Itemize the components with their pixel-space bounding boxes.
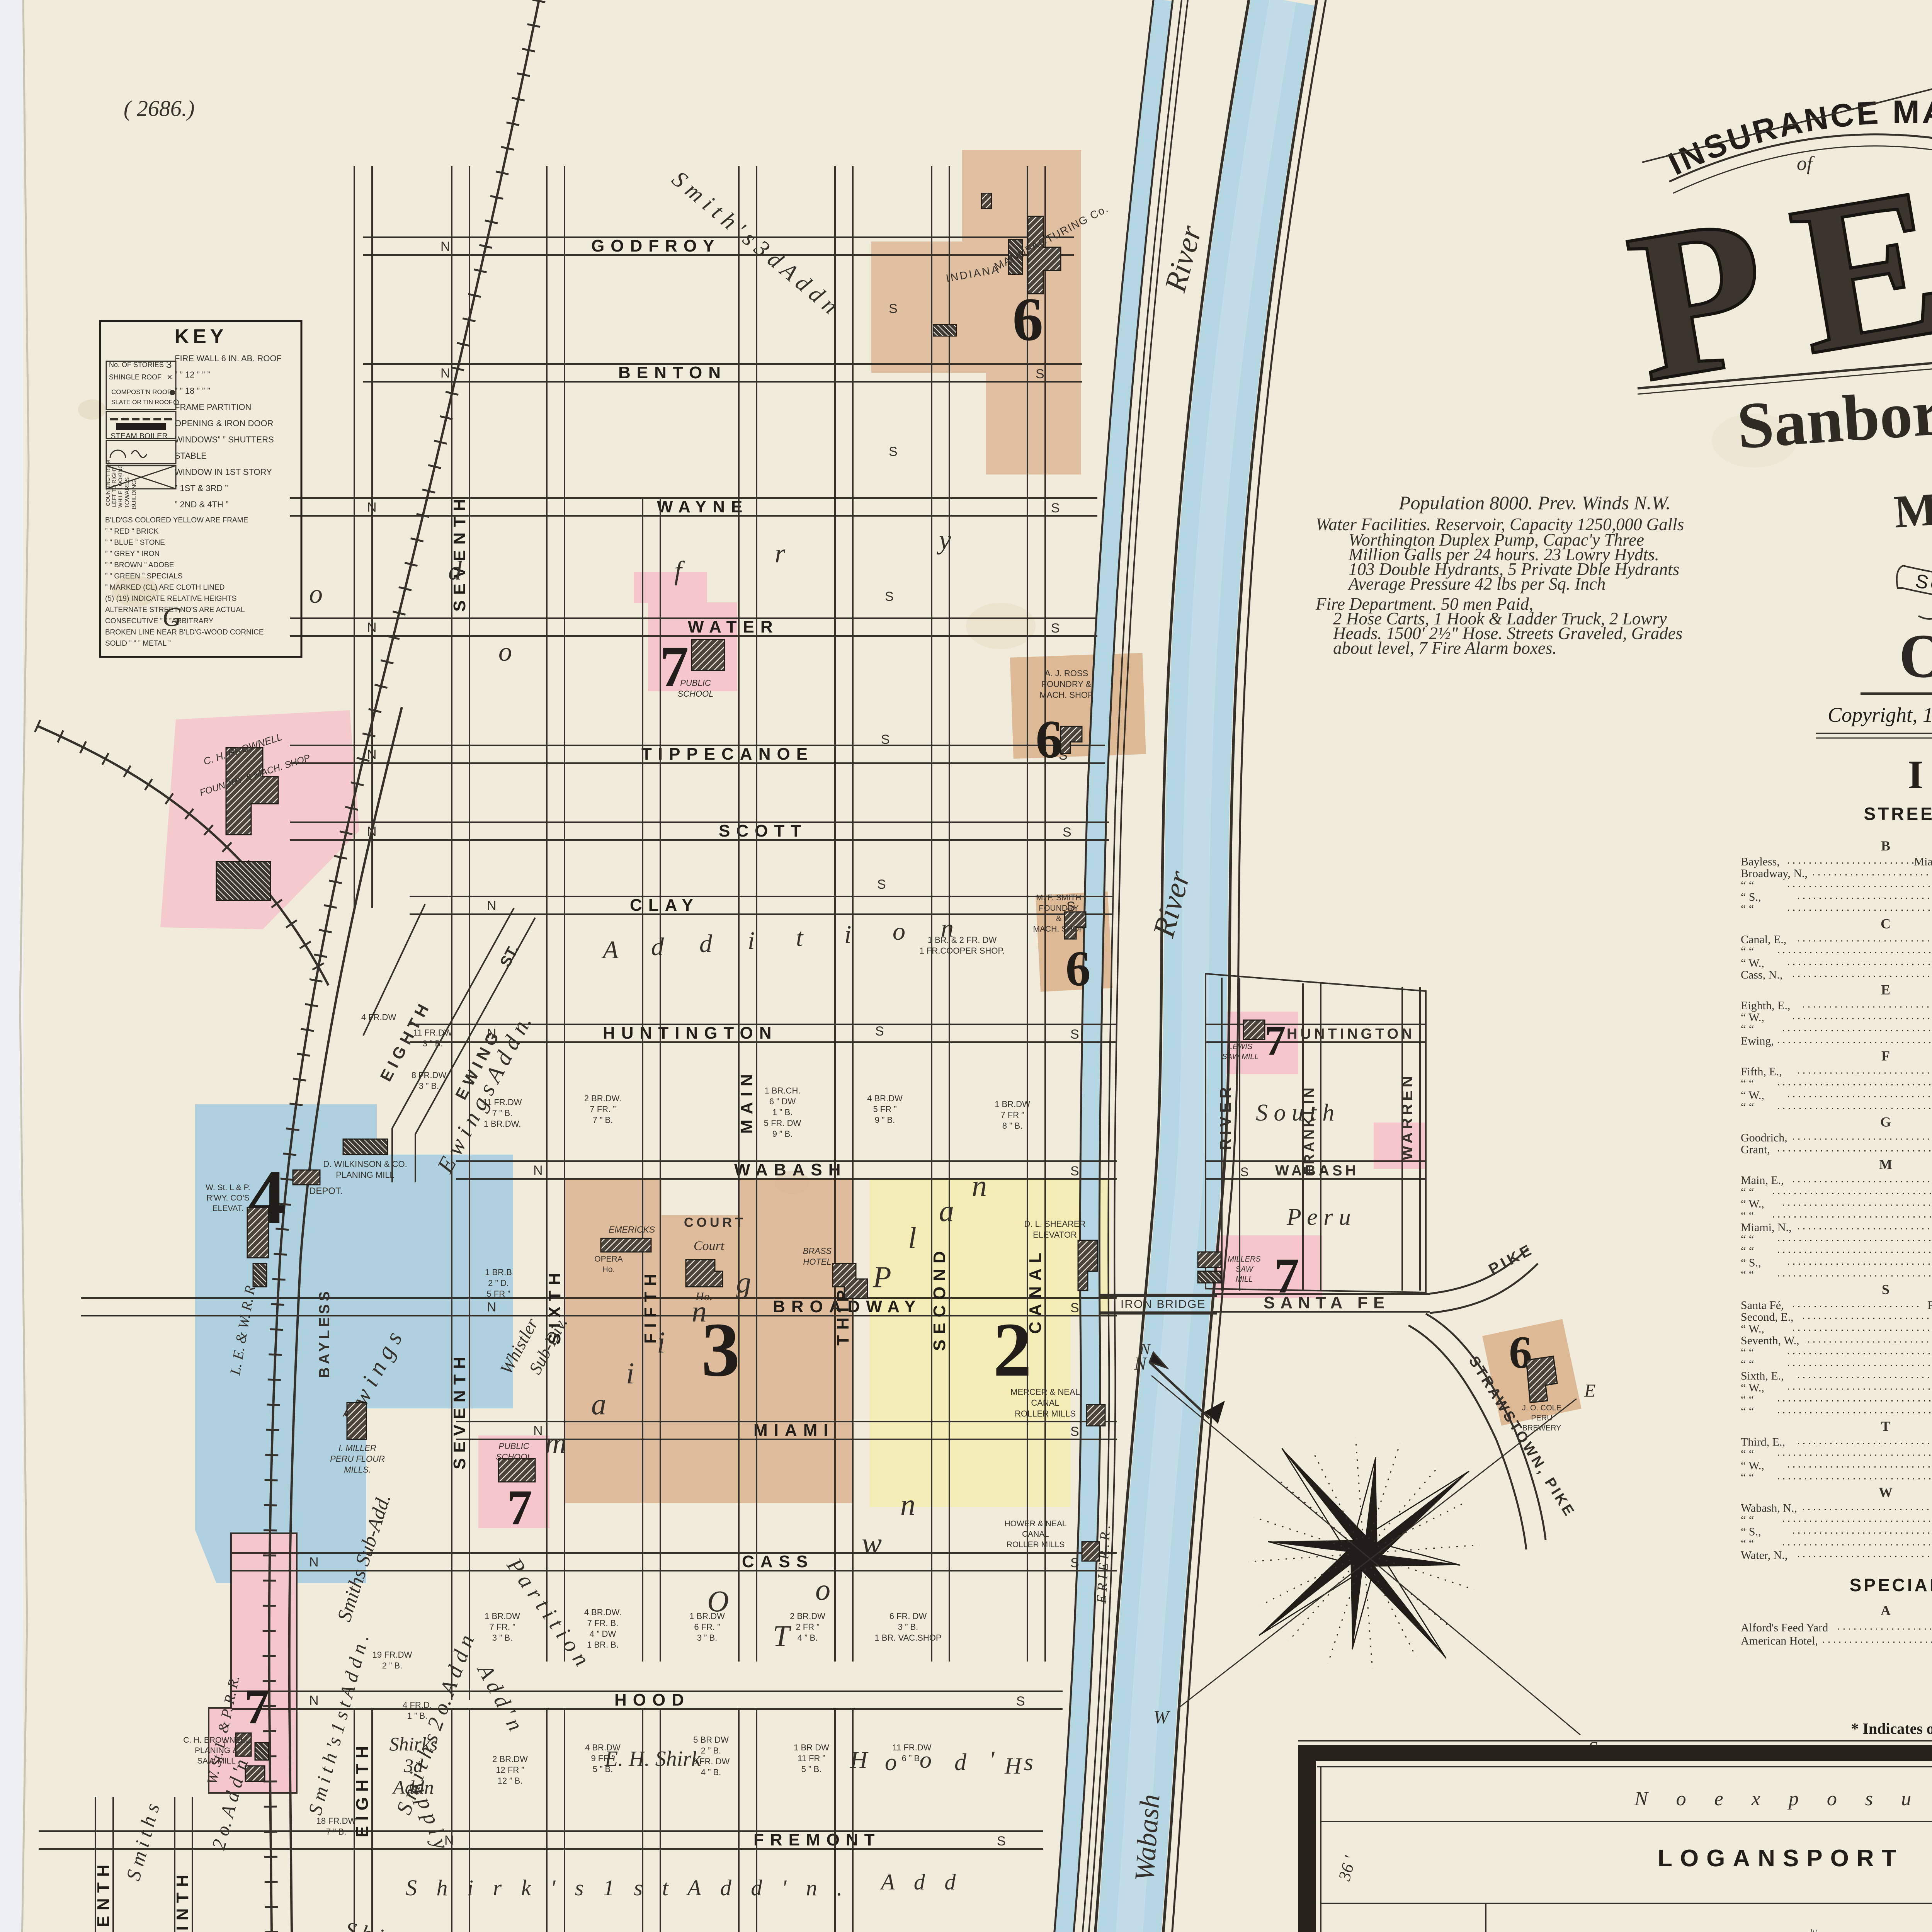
svg-text:“ “: “ “ [1741, 1023, 1754, 1036]
svg-text:COURT: COURT [684, 1215, 746, 1230]
svg-text:FRAME PARTITION: FRAME PARTITION [175, 402, 251, 412]
svg-text:Copyright, 1887, by the Sanbor: Copyright, 1887, by the Sanborn Map & Pu… [1828, 703, 1932, 726]
svg-text:“ “: “ “ [1741, 1537, 1754, 1550]
svg-text:Miami to Broadway: Miami to Broadway [1914, 855, 1932, 868]
svg-text:7: 7 [245, 1679, 270, 1735]
svg-text:S: S [1070, 1556, 1079, 1570]
svg-text:GODFROY: GODFROY [591, 236, 720, 255]
svg-text:3 ” B.: 3 ” B. [423, 1039, 443, 1048]
svg-text:“ “: “ “ [1741, 1447, 1754, 1460]
svg-text:PERU: PERU [1531, 1414, 1553, 1422]
svg-text:3 ” B.: 3 ” B. [697, 1633, 718, 1643]
svg-text:“ “: “ “ [1741, 945, 1754, 958]
svg-text:MILL: MILL [1236, 1275, 1253, 1284]
svg-text:7 FR ”: 7 FR ” [1000, 1110, 1024, 1120]
svg-text:S: S [1240, 1165, 1248, 1179]
svg-text:1 BR. VAC.SHOP: 1 BR. VAC.SHOP [874, 1633, 941, 1643]
svg-text:D. WILKINSON & CO.: D. WILKINSON & CO. [323, 1159, 407, 1169]
svg-text:R'WY. CO'S: R'WY. CO'S [206, 1194, 249, 1202]
svg-text:5 BR DW: 5 BR DW [693, 1735, 729, 1745]
svg-text:Bayless,: Bayless, [1741, 855, 1780, 868]
svg-text:S: S [1016, 1694, 1025, 1709]
svg-text:A. J. ROSS: A. J. ROSS [1045, 668, 1088, 678]
svg-text:“ “: “ “ [1741, 1209, 1754, 1222]
svg-text:STABLE: STABLE [175, 451, 207, 461]
svg-text:P: P [872, 1260, 891, 1294]
svg-text:4 FR.D.: 4 FR.D. [403, 1700, 432, 1710]
svg-text:MIAMI: MIAMI [753, 1421, 835, 1440]
svg-text:Canal, E.,: Canal, E., [1741, 933, 1786, 946]
svg-text:6: 6 [1036, 709, 1063, 769]
svg-text:i: i [748, 927, 755, 955]
svg-text:1 FR.COOPER SHOP.: 1 FR.COOPER SHOP. [920, 946, 1005, 956]
svg-text:SAW MILL: SAW MILL [1222, 1053, 1259, 1061]
svg-text:BRASS: BRASS [803, 1246, 832, 1256]
svg-text:9 FR ”: 9 FR ” [591, 1753, 614, 1763]
svg-text:OPENING & IRON DOOR: OPENING & IRON DOOR [175, 418, 273, 428]
svg-text:1 BR. B.: 1 BR. B. [587, 1640, 619, 1650]
svg-text:EMERICKS: EMERICKS [609, 1225, 655, 1235]
svg-text:7 FR. ”: 7 FR. ” [489, 1622, 515, 1632]
svg-text:1 BR.DW.: 1 BR.DW. [484, 1119, 521, 1129]
svg-text:2 BR.DW: 2 BR.DW [790, 1611, 825, 1621]
svg-text:5 ” B.: 5 ” B. [801, 1764, 822, 1774]
svg-text:SEVENTH: SEVENTH [450, 1351, 469, 1469]
svg-text:S: S [1070, 1301, 1079, 1315]
svg-text:S: S [1070, 1027, 1079, 1042]
svg-text:a: a [591, 1387, 606, 1421]
svg-text:“ “: “ “ [1741, 1346, 1754, 1359]
svg-text:2 BR.DW: 2 BR.DW [492, 1754, 528, 1764]
svg-text:Cass, N.,: Cass, N., [1741, 969, 1782, 981]
svg-text:N: N [487, 898, 497, 913]
svg-text:N: N [487, 1300, 497, 1315]
svg-text:BAYLESS: BAYLESS [316, 1288, 333, 1378]
svg-text:D. L. SHEARER: D. L. SHEARER [1024, 1219, 1086, 1229]
svg-text:J. O. COLE: J. O. COLE [1522, 1404, 1561, 1412]
svg-text:Franklin to River: Franklin to River [1927, 1299, 1932, 1312]
svg-text:S: S [885, 589, 894, 604]
svg-text:ROLLER MILLS: ROLLER MILLS [1015, 1409, 1076, 1418]
svg-text:2 FR ”: 2 FR ” [796, 1622, 819, 1632]
svg-text:19 FR.DW: 19 FR.DW [372, 1650, 412, 1660]
svg-text:Eighth, E.,: Eighth, E., [1741, 999, 1790, 1012]
svg-text:S h i r k ' s 1 s t A d: S h i r k ' s 1 s t A d d ' n . [406, 1875, 849, 1900]
svg-text:S: S [997, 1834, 1006, 1849]
svg-text:“ W.,: “ W., [1741, 1381, 1764, 1394]
svg-text:B: B [1881, 838, 1890, 854]
svg-text:H: H [1004, 1753, 1023, 1779]
svg-text:DEPOT.: DEPOT. [309, 1186, 343, 1196]
svg-text:WABASH: WABASH [734, 1160, 847, 1179]
svg-text:Grant,: Grant, [1741, 1143, 1770, 1156]
svg-text:8 FR.DW: 8 FR.DW [412, 1070, 447, 1080]
svg-text:FRANKLIN: FRANKLIN [1301, 1085, 1317, 1175]
svg-text:Goodrich,: Goodrich, [1741, 1131, 1787, 1144]
svg-text:o: o [815, 1573, 830, 1606]
svg-text:“ “: “ “ [1741, 1233, 1754, 1246]
svg-text:WARREN: WARREN [1399, 1073, 1416, 1160]
svg-text:” 1ST & 3RD ”: ” 1ST & 3RD ” [175, 483, 228, 493]
svg-text:n: n [900, 1488, 915, 1521]
svg-text:o: o [885, 1749, 897, 1776]
svg-text:4 ” B.: 4 ” B. [701, 1767, 721, 1777]
svg-text:Population 8000. Prev. Winds: Population 8000. Prev. Winds N.W. [1398, 492, 1671, 514]
svg-text:N: N [309, 1693, 319, 1708]
svg-text:M: M [1879, 1157, 1892, 1172]
svg-text:“ “: “ “ [1741, 903, 1754, 915]
svg-text:“ W.,: “ W., [1741, 1323, 1764, 1335]
svg-text:S: S [1070, 1164, 1079, 1179]
svg-text:d: d [699, 930, 713, 958]
svg-text:6 FR. DW: 6 FR. DW [692, 1757, 730, 1766]
svg-text:BUILDING: BUILDING [131, 480, 138, 509]
svg-text:WATER: WATER [688, 617, 779, 636]
svg-text:11 FR.DW: 11 FR.DW [892, 1743, 931, 1752]
svg-text:1 BR.CH.: 1 BR.CH. [765, 1086, 801, 1095]
svg-text:o: o [498, 637, 512, 667]
svg-text:FIRE WALL 6 IN. AB. ROOF: FIRE WALL 6 IN. AB. ROOF [175, 354, 282, 363]
svg-text:MACH. SHOP: MACH. SHOP [1039, 690, 1093, 700]
svg-text:T: T [773, 1619, 791, 1653]
svg-text:( 2686.): ( 2686.) [124, 96, 195, 121]
svg-text:IRON BRIDGE: IRON BRIDGE [1121, 1298, 1206, 1311]
svg-text:PUBLIC: PUBLIC [498, 1441, 529, 1451]
svg-text:S: S [875, 1024, 884, 1039]
svg-text:“ W.,: “ W., [1741, 1197, 1764, 1210]
svg-text:g: g [736, 1265, 751, 1299]
svg-text:6 FR. DW: 6 FR. DW [889, 1611, 927, 1621]
svg-text:G: G [1880, 1114, 1891, 1130]
svg-text:11 FR.DW: 11 FR.DW [483, 1097, 522, 1107]
svg-text:RIVER: RIVER [1217, 1083, 1234, 1150]
svg-text:SAW MILL: SAW MILL [197, 1757, 236, 1765]
svg-text:N o e x p o s u r e: N o e x p o s u r e [1634, 1788, 1932, 1810]
svg-text:TOWARDS: TOWARDS [124, 477, 131, 509]
svg-text:CASS: CASS [742, 1552, 814, 1571]
svg-text:N: N [440, 366, 450, 381]
svg-text:MERCER & NEAL: MERCER & NEAL [1010, 1387, 1080, 1397]
svg-text:Shirks: Shirks [389, 1733, 438, 1755]
svg-text:1 BR.DW: 1 BR.DW [995, 1099, 1030, 1109]
svg-text:11 FR.DW: 11 FR.DW [413, 1028, 452, 1037]
svg-text:n: n [972, 1169, 987, 1202]
svg-text:s: s [1024, 1749, 1033, 1776]
svg-text:“ “: “ “ [1741, 1186, 1754, 1199]
svg-text:9 ” B.: 9 ” B. [875, 1115, 895, 1125]
svg-text:5 FR ”: 5 FR ” [873, 1104, 896, 1114]
svg-text:N: N [309, 1555, 319, 1570]
svg-text:No. OF STORIES: No. OF STORIES [109, 361, 164, 369]
svg-text:ALTERNATE STREET NO'S ARE ACTU: ALTERNATE STREET NO'S ARE ACTUAL [105, 606, 245, 614]
svg-text:“ W.,: “ W., [1741, 1011, 1764, 1024]
svg-text:3d: 3d [403, 1755, 423, 1776]
svg-text:MILLERS: MILLERS [1228, 1255, 1261, 1264]
svg-text:LEWIS: LEWIS [1228, 1043, 1253, 1051]
svg-text:1 ” B.: 1 ” B. [407, 1711, 428, 1721]
svg-text:Seventh, W.,: Seventh, W., [1741, 1334, 1799, 1347]
svg-text:“ “: “ “ [1741, 1358, 1754, 1371]
svg-text:Sixth, E.,: Sixth, E., [1741, 1370, 1784, 1383]
svg-text:1 BR.DW: 1 BR.DW [485, 1611, 520, 1621]
svg-text:* Indicates only one side of S: * Indicates only one side of Street show… [1851, 1720, 1932, 1737]
svg-text:6: 6 [1066, 941, 1091, 997]
svg-text:7 ” B.: 7 ” B. [492, 1108, 513, 1118]
svg-text:N: N [1139, 1340, 1151, 1358]
svg-text:1 BR DW: 1 BR DW [794, 1743, 829, 1752]
svg-text:4 ” DW: 4 ” DW [590, 1629, 616, 1639]
svg-text:2 ” B.: 2 ” B. [382, 1661, 403, 1670]
svg-text:d: d [651, 933, 664, 961]
svg-text:i: i [626, 1356, 634, 1390]
svg-text:SPECIALS.: SPECIALS. [1850, 1575, 1932, 1595]
svg-text:Water, N.,: Water, N., [1741, 1549, 1787, 1562]
svg-text:“ W.,: “ W., [1741, 1459, 1764, 1472]
svg-text:“ “: “ “ [1741, 1268, 1754, 1281]
svg-text:S: S [889, 301, 898, 316]
svg-text:d: d [954, 1749, 967, 1776]
svg-text:o: o [893, 917, 905, 946]
svg-text:Oct, 1887: Oct, 1887 [1899, 622, 1932, 691]
svg-text:': ' [989, 1747, 995, 1773]
svg-text:6 ” B.: 6 ” B. [902, 1753, 922, 1763]
svg-text:18 FR.DW: 18 FR.DW [316, 1816, 356, 1826]
svg-text:12 FR ”: 12 FR ” [496, 1765, 524, 1775]
svg-text:Ho.: Ho. [602, 1265, 615, 1274]
svg-text:12 ” B.: 12 ” B. [498, 1776, 523, 1786]
svg-text:×: × [167, 372, 172, 383]
svg-text:3 ” B.: 3 ” B. [492, 1633, 513, 1643]
svg-text:TENTH: TENTH [94, 1859, 113, 1932]
svg-text:WABASH: WABASH [1275, 1163, 1359, 1179]
svg-text:m: m [545, 1426, 566, 1459]
svg-text:F: F [1881, 1048, 1890, 1064]
svg-text:BROKEN LINE NEAR B'LD'G-WOOD C: BROKEN LINE NEAR B'LD'G-WOOD CORNICE [105, 628, 264, 636]
svg-text:S o u t h: S o u t h [1256, 1100, 1334, 1126]
svg-text:S: S [877, 877, 886, 892]
svg-text:S: S [1051, 621, 1060, 636]
svg-text:5 FR. DW: 5 FR. DW [764, 1118, 801, 1128]
svg-text:PLANING &: PLANING & [195, 1746, 238, 1755]
svg-text:C: C [1881, 916, 1891, 932]
svg-text:6 FR. ”: 6 FR. ” [694, 1622, 720, 1632]
svg-text:Santa Fé,: Santa Fé, [1741, 1299, 1784, 1312]
svg-text:MAIN: MAIN [737, 1069, 756, 1134]
svg-text:CLAY: CLAY [630, 896, 699, 915]
svg-text:ELEVATOR: ELEVATOR [1033, 1230, 1077, 1240]
svg-text:W. St. L & P.: W. St. L & P. [206, 1183, 250, 1192]
svg-text:6: 6 [1012, 285, 1043, 354]
svg-text:TIPPECANOE: TIPPECANOE [641, 745, 814, 764]
svg-text:4 BR.DW.: 4 BR.DW. [584, 1607, 622, 1617]
svg-text:1 BR. & 2 FR. DW: 1 BR. & 2 FR. DW [928, 935, 997, 945]
svg-text:N: N [533, 1423, 543, 1438]
svg-text:Map: Map [1893, 480, 1932, 537]
svg-text:B'LD'GS COLORED YELLOW ARE FRA: B'LD'GS COLORED YELLOW ARE FRAME [105, 516, 248, 524]
svg-text:SECOND: SECOND [930, 1246, 949, 1351]
svg-text:7 FR. B.: 7 FR. B. [587, 1618, 619, 1628]
svg-text:WAYNE: WAYNE [657, 497, 748, 516]
svg-text:OPERA: OPERA [594, 1255, 623, 1264]
svg-text:KEY: KEY [175, 325, 228, 348]
svg-text:1 ” B.: 1 ” B. [772, 1107, 793, 1117]
svg-text:7 ” B.: 7 ” B. [593, 1115, 613, 1125]
svg-text:Court: Court [694, 1239, 725, 1253]
svg-text:S: S [1063, 825, 1071, 840]
svg-text:5 FR ”: 5 FR ” [486, 1289, 510, 1299]
svg-text:Average Pressure 42 lbs per Sq: Average Pressure 42 lbs per Sq. Inch [1347, 574, 1605, 594]
svg-text:S: S [889, 444, 898, 459]
svg-text:” ” GREEN ” SPEC: ” ” GREEN ” SPECIALS [105, 572, 183, 580]
svg-text:CANAL: CANAL [1022, 1530, 1049, 1539]
svg-text:HOOD: HOOD [614, 1690, 690, 1709]
svg-text:2 ” D.: 2 ” D. [488, 1278, 509, 1288]
svg-text:N: N [533, 1163, 543, 1178]
svg-text:i: i [844, 920, 851, 949]
svg-text:Broadway, N.,: Broadway, N., [1741, 867, 1808, 880]
svg-text:SAW: SAW [1235, 1265, 1253, 1274]
svg-text:Alford's Feed Yard: Alford's Feed Yard [1741, 1621, 1828, 1634]
svg-text:2: 2 [993, 1307, 1032, 1393]
svg-text:PUBLIC: PUBLIC [680, 678, 711, 688]
svg-text:MILLS.: MILLS. [344, 1465, 371, 1475]
svg-text:S: S [1070, 1424, 1079, 1439]
svg-text:“ “: “ “ [1741, 1514, 1754, 1526]
svg-text:7 ” B.: 7 ” B. [326, 1827, 347, 1837]
svg-text:about level, 7 Fire Alarm box: about level, 7 Fire Alarm boxes. [1333, 638, 1557, 658]
svg-text:Miami, N.,: Miami, N., [1741, 1221, 1792, 1234]
svg-text:American Hotel,: American Hotel, [1741, 1634, 1818, 1647]
svg-text:i: i [657, 1325, 665, 1359]
svg-text:11 FR ”: 11 FR ” [798, 1753, 825, 1763]
svg-text:Second, E.,: Second, E., [1741, 1311, 1794, 1323]
svg-text:M. F. SMITH: M. F. SMITH [1036, 893, 1082, 902]
svg-text:LEFT TO RIGHT: LEFT TO RIGHT [111, 466, 117, 507]
svg-text:d: d [448, 556, 462, 586]
svg-text:7: 7 [1265, 1017, 1286, 1064]
svg-text:Addn: Addn [392, 1776, 434, 1798]
svg-text:1 BR.DW: 1 BR.DW [689, 1611, 725, 1621]
svg-text:&: & [1056, 914, 1061, 923]
svg-text:” ” BROWN ” ADO: ” ” BROWN ” ADOBE [105, 561, 174, 569]
svg-text:PERU FLOUR: PERU FLOUR [330, 1454, 385, 1464]
svg-text:I. MILLER: I. MILLER [338, 1443, 376, 1453]
svg-text:E: E [1881, 982, 1890, 998]
svg-text:STEAM BOILER: STEAM BOILER [111, 432, 168, 440]
svg-text:r: r [775, 539, 786, 568]
svg-text:LOGANSPORT: LOGANSPORT [1658, 1845, 1904, 1872]
svg-text:NINTH: NINTH [173, 1869, 192, 1932]
svg-text:9 ” B.: 9 ” B. [772, 1129, 793, 1139]
svg-text:5 ” B.: 5 ” B. [593, 1764, 613, 1774]
svg-text:HOTEL: HOTEL [803, 1257, 831, 1267]
svg-text:WINDOWS” ” SHUTTERS: WINDOWS” ” SHUTTERS [175, 435, 274, 444]
svg-text:SOLID ” ” ”: SOLID ” ” ” METAL ” [105, 639, 171, 648]
svg-text:SHINGLE ROOF: SHINGLE ROOF [109, 373, 162, 381]
svg-text:3 ” B.: 3 ” B. [419, 1081, 439, 1091]
svg-text:y: y [937, 525, 951, 555]
svg-text:” MARKED (CL) ARE CLOTH LI: ” MARKED (CL) ARE CLOTH LINED [105, 583, 224, 592]
svg-text:6 ” DW: 6 ” DW [769, 1097, 796, 1106]
svg-text:3: 3 [701, 1307, 740, 1393]
svg-text:“ W.,: “ W., [1741, 1089, 1764, 1102]
svg-text:” ” GREY ” IR: ” ” GREY ” IRON [105, 550, 160, 558]
svg-text:BENTON: BENTON [618, 363, 727, 382]
svg-text:I N D E X .: I N D E X . [1908, 752, 1932, 797]
svg-text:PLANING MILL: PLANING MILL [336, 1170, 395, 1180]
svg-text:SLATE OR TIN ROOF: SLATE OR TIN ROOF [111, 399, 173, 406]
svg-text:“ W.,: “ W., [1741, 957, 1764, 969]
svg-text:7 FR. ”: 7 FR. ” [590, 1104, 616, 1114]
svg-text:“ “: “ “ [1741, 1101, 1754, 1114]
svg-text:A: A [1881, 1603, 1891, 1618]
svg-text:(5) (19) INDICATE RELATIVE HEI: (5) (19) INDICATE RELATIVE HEIGHTS [105, 595, 236, 603]
svg-text:” ” 18 ” ” ”: ” ” 18 ” ” ” [175, 386, 210, 396]
svg-text:t: t [796, 923, 804, 952]
svg-text:Third, E.,: Third, E., [1741, 1436, 1785, 1449]
svg-text:7: 7 [507, 1480, 532, 1536]
svg-text:COMPOST'N ROOF: COMPOST'N ROOF [111, 388, 171, 396]
svg-text:Wabash: Wabash [1129, 1793, 1166, 1882]
svg-text:S: S [1036, 367, 1044, 381]
svg-text:COUNTING FROM: COUNTING FROM [105, 460, 111, 506]
svg-text:A d d: A d d [879, 1869, 963, 1895]
svg-text:W: W [1153, 1707, 1170, 1728]
svg-text:w: w [862, 1526, 882, 1560]
svg-text:ELEVAT.: ELEVAT. [213, 1204, 244, 1213]
svg-text:a: a [939, 1194, 954, 1228]
svg-text:SCHOOL: SCHOOL [496, 1452, 532, 1462]
svg-text:S: S [1882, 1282, 1889, 1297]
svg-text:“ “: “ “ [1741, 1077, 1754, 1090]
svg-text:H: H [850, 1747, 869, 1773]
svg-text:P e r u: P e r u [1286, 1204, 1351, 1230]
svg-text:FOUNDRY: FOUNDRY [1039, 904, 1078, 913]
svg-text:N: N [440, 239, 450, 254]
svg-text:Wabash, N.,: Wabash, N., [1741, 1502, 1797, 1515]
svg-text:“ S.,: “ S., [1741, 1257, 1761, 1269]
svg-text:CONSECUTIVE ” ” ”A: CONSECUTIVE ” ” ”ARBITRARY [105, 617, 214, 625]
svg-text:7: 7 [1274, 1248, 1299, 1304]
svg-text:“ S.,: “ S., [1741, 891, 1761, 903]
svg-text:“ “: “ “ [1741, 1245, 1754, 1257]
svg-text:” ” BLUE ” ST: ” ” BLUE ” STONE [105, 539, 165, 547]
svg-text:4 FR.DW: 4 FR.DW [361, 1012, 396, 1022]
svg-text:Main, E.,: Main, E., [1741, 1174, 1784, 1187]
svg-text:” 2ND & 4TH ”: ” 2ND & 4TH ” [175, 500, 228, 509]
svg-text:8 ” B.: 8 ” B. [1002, 1121, 1023, 1131]
svg-text:“ “: “ “ [1741, 879, 1754, 892]
svg-text:WINDOW IN 1ST STORY: WINDOW IN 1ST STORY [175, 467, 272, 477]
svg-text:o: o [309, 579, 323, 609]
svg-text:“ “: “ “ [1741, 1393, 1754, 1406]
svg-text:” ” 12 ” ” ”: ” ” 12 ” ” ” [175, 370, 210, 379]
svg-text:T: T [1881, 1418, 1890, 1434]
svg-text:MACH. SHOP: MACH. SHOP [1033, 925, 1084, 934]
svg-text:4 BR.DW: 4 BR.DW [585, 1743, 621, 1752]
svg-text:“ S.,: “ S., [1741, 1526, 1761, 1538]
svg-text:C. H. BROWNELL: C. H. BROWNELL [183, 1736, 250, 1745]
svg-text:A: A [601, 936, 619, 964]
svg-text:2 ” B.: 2 ” B. [701, 1746, 721, 1755]
svg-text:S: S [1051, 501, 1060, 515]
svg-text:1 BR.B: 1 BR.B [485, 1267, 512, 1277]
svg-text:HUNTINGTON: HUNTINGTON [603, 1024, 778, 1043]
svg-text:4 ” B.: 4 ” B. [798, 1633, 818, 1643]
svg-text:3: 3 [166, 359, 172, 370]
svg-text:4 BR.DW: 4 BR.DW [867, 1094, 903, 1103]
svg-text:ROLLER MILLS: ROLLER MILLS [1007, 1540, 1065, 1549]
